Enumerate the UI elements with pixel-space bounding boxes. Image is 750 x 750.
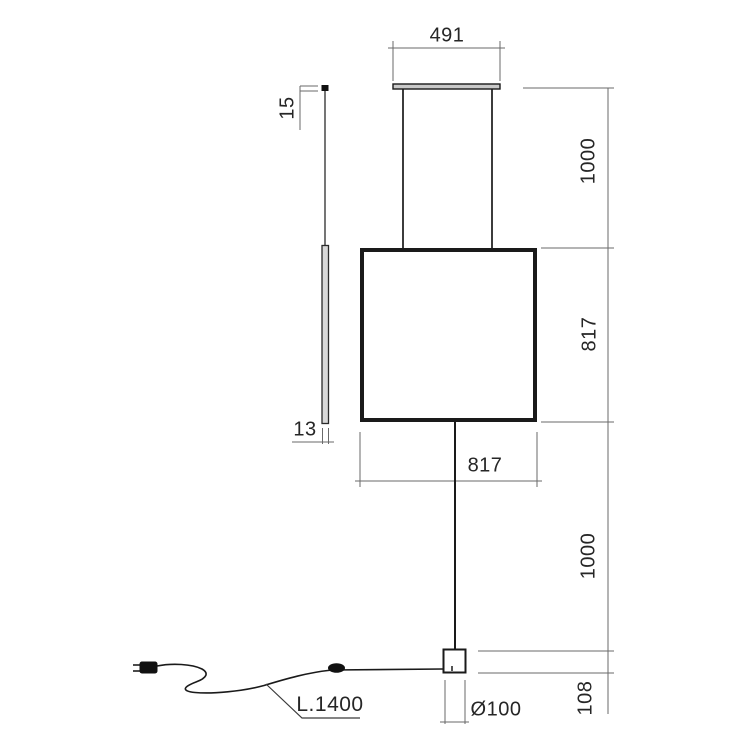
floor-base bbox=[444, 650, 466, 673]
dim-panel-width-lines bbox=[355, 432, 542, 487]
drawing-linework bbox=[0, 0, 750, 750]
power-cord bbox=[157, 664, 443, 693]
plug-prongs bbox=[133, 665, 140, 671]
dim-base-diameter-lines bbox=[440, 680, 469, 724]
dim-label-upper-height: 1000 bbox=[578, 138, 601, 185]
dim-label-panel-width: 817 bbox=[468, 455, 503, 478]
dimension-drawing: 491 1000 817 817 1000 108 Ø100 L.1400 15… bbox=[0, 0, 750, 750]
dim-label-base-diameter: Ø100 bbox=[471, 699, 522, 722]
dim-label-top-width: 491 bbox=[430, 25, 465, 48]
light-panel bbox=[362, 250, 535, 420]
dim-label-lower-height: 1000 bbox=[578, 533, 601, 580]
dim-cap-height-lines bbox=[300, 86, 318, 130]
side-profile-view bbox=[322, 85, 329, 424]
dim-label-profile-thickness: 13 bbox=[293, 419, 316, 442]
power-cord-assembly bbox=[133, 662, 443, 693]
dim-label-base-height: 108 bbox=[575, 681, 598, 716]
inline-switch bbox=[328, 663, 345, 673]
ceiling-bar bbox=[393, 84, 500, 89]
profile-slab bbox=[322, 246, 329, 424]
dim-label-panel-height: 817 bbox=[579, 317, 602, 352]
plug bbox=[140, 662, 158, 674]
dim-label-cap-height: 15 bbox=[277, 96, 300, 119]
dim-label-cord-length: L.1400 bbox=[296, 693, 363, 717]
profile-cap bbox=[322, 85, 329, 91]
